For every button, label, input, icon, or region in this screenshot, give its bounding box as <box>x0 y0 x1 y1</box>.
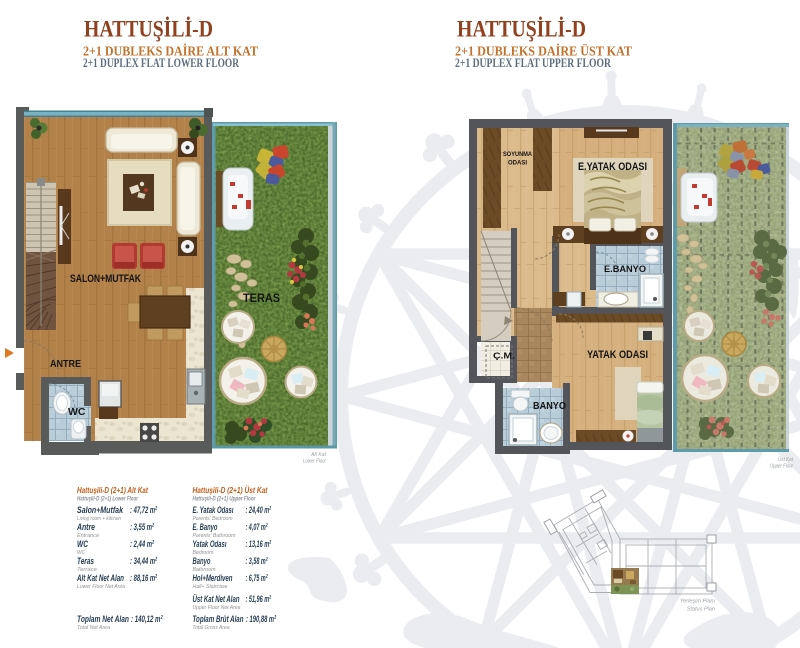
svg-text:Upper Floor: Upper Floor <box>770 464 794 470</box>
svg-text:Alt Kat: Alt Kat <box>310 452 326 458</box>
svg-text:Toplam Net Alan: Toplam Net Alan <box>77 614 129 624</box>
svg-text:Ç.M.: Ç.M. <box>493 352 515 361</box>
svg-text:Hall+ Staircase: Hall+ Staircase <box>193 584 229 590</box>
svg-text:HATTUŞİLİ-D: HATTUŞİLİ-D <box>84 17 213 42</box>
svg-text:ODASI: ODASI <box>508 160 527 167</box>
svg-text:E.YATAK ODASI: E.YATAK ODASI <box>578 161 647 173</box>
svg-text:: 51,96 m²: : 51,96 m² <box>246 594 272 604</box>
svg-text:: 3,55 m²: : 3,55 m² <box>130 522 155 532</box>
svg-text:: 140,12 m²: : 140,12 m² <box>131 614 163 624</box>
svg-text:: 24,40 m²: : 24,40 m² <box>246 505 272 515</box>
svg-text:WC: WC <box>68 406 86 418</box>
svg-text:Üst Kat: Üst Kat <box>778 456 793 463</box>
svg-text:TERAS: TERAS <box>243 293 280 305</box>
svg-text:Upper Floor Net Area: Upper Floor Net Area <box>193 605 242 611</box>
svg-text:Total Gross Area: Total Gross Area <box>193 625 231 631</box>
svg-text:E.BANYO: E.BANYO <box>604 264 646 275</box>
svg-text:BANYO: BANYO <box>533 401 566 412</box>
svg-text:: 47,72 m²: : 47,72 m² <box>130 505 158 515</box>
svg-text:: 13,16 m²: : 13,16 m² <box>246 539 272 549</box>
svg-text:Total Net Area: Total Net Area <box>77 625 111 631</box>
svg-text:: 2,44 m²: : 2,44 m² <box>130 539 155 549</box>
svg-text:Yerleşim Planı: Yerleşim Planı <box>680 599 716 605</box>
svg-text:: 190,88 m²: : 190,88 m² <box>246 614 277 624</box>
svg-text:SOYUNMA: SOYUNMA <box>503 151 532 158</box>
svg-text:: 6,75 m²: : 6,75 m² <box>246 573 269 583</box>
svg-text:WC: WC <box>77 539 88 549</box>
svg-text:YATAK ODASI: YATAK ODASI <box>587 349 648 361</box>
svg-text:: 3,58 m²: : 3,58 m² <box>246 556 269 566</box>
svg-text:: 88,16 m²: : 88,16 m² <box>130 573 158 583</box>
svg-text:Antre: Antre <box>76 522 95 532</box>
svg-text:Alt Kat Net Alan: Alt Kat Net Alan <box>76 573 124 583</box>
svg-text:E. Banyo: E. Banyo <box>193 522 218 532</box>
svg-text:Toplam Brüt Alan: Toplam Brüt Alan <box>193 614 244 624</box>
svg-text:Hattuşili-D (2+1) Lower Floor: Hattuşili-D (2+1) Lower Floor <box>77 496 138 503</box>
svg-text:Hattuşili-D (2+1) Üst Kat: Hattuşili-D (2+1) Üst Kat <box>193 485 269 495</box>
svg-text:SALON+MUTFAK: SALON+MUTFAK <box>70 273 141 285</box>
svg-text:2+1 DUPLEX FLAT LOWER FLOOR: 2+1 DUPLEX FLAT LOWER FLOOR <box>83 56 240 70</box>
svg-text:Salon+Mutfak: Salon+Mutfak <box>77 505 124 515</box>
svg-text:Hol+Merdiven: Hol+Merdiven <box>193 573 233 583</box>
svg-text:ANTRE: ANTRE <box>50 358 81 370</box>
svg-text:Lower Floor Net Area: Lower Floor Net Area <box>77 584 126 590</box>
svg-text:Lower Floor: Lower Floor <box>303 459 327 465</box>
svg-text:Banyo: Banyo <box>193 556 211 566</box>
svg-text:Teras: Teras <box>77 556 94 566</box>
svg-text:Üst Kat Net Alan: Üst Kat Net Alan <box>193 594 240 604</box>
svg-text:: 4,07 m²: : 4,07 m² <box>246 522 269 532</box>
svg-text:2+1 DUPLEX FLAT UPPER FLOOR: 2+1 DUPLEX FLAT UPPER FLOOR <box>455 56 612 70</box>
svg-text:E. Yatak Odası: E. Yatak Odası <box>193 505 234 515</box>
svg-text:Yatak Odası: Yatak Odası <box>193 539 227 549</box>
svg-text:Status Plan: Status Plan <box>687 607 715 613</box>
svg-text:Hattuşili-D (2+1) Alt Kat: Hattuşili-D (2+1) Alt Kat <box>77 485 149 495</box>
svg-text:HATTUŞİLİ-D: HATTUŞİLİ-D <box>457 17 586 42</box>
svg-text:: 34,44 m²: : 34,44 m² <box>130 556 158 566</box>
svg-text:Hattuşili-D (2+1) Upper Floor: Hattuşili-D (2+1) Upper Floor <box>193 496 256 503</box>
